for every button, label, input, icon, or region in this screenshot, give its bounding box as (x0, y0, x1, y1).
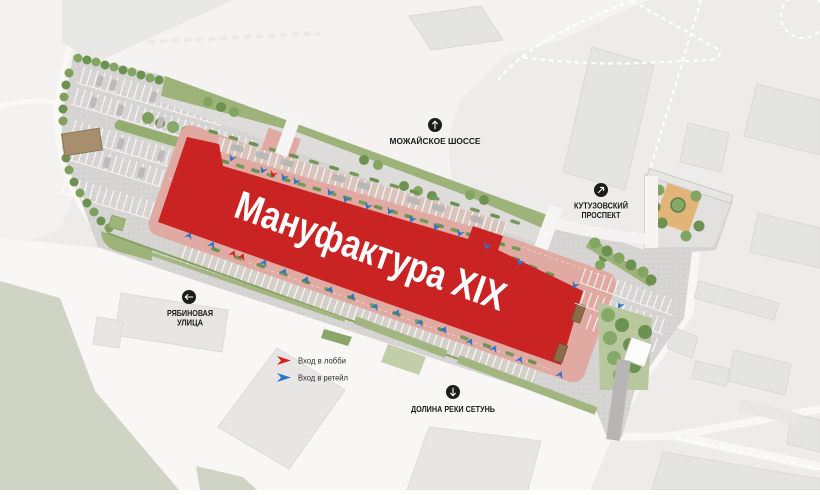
svg-text:КУТУЗОВСКИЙ: КУТУЗОВСКИЙ (574, 200, 628, 211)
svg-text:РЯБИНОВАЯ: РЯБИНОВАЯ (167, 308, 213, 318)
svg-text:Вход в ретейл: Вход в ретейл (298, 373, 348, 383)
svg-text:ПРОСПЕКТ: ПРОСПЕКТ (582, 210, 622, 220)
svg-text:ДОЛИНА РЕКИ СЕТУНЬ: ДОЛИНА РЕКИ СЕТУНЬ (411, 404, 495, 414)
svg-text:УЛИЦА: УЛИЦА (177, 318, 203, 328)
svg-text:МОЖАЙСКОЕ ШОССЕ: МОЖАЙСКОЕ ШОССЕ (390, 135, 481, 146)
svg-text:Вход в лобби: Вход в лобби (298, 356, 346, 366)
